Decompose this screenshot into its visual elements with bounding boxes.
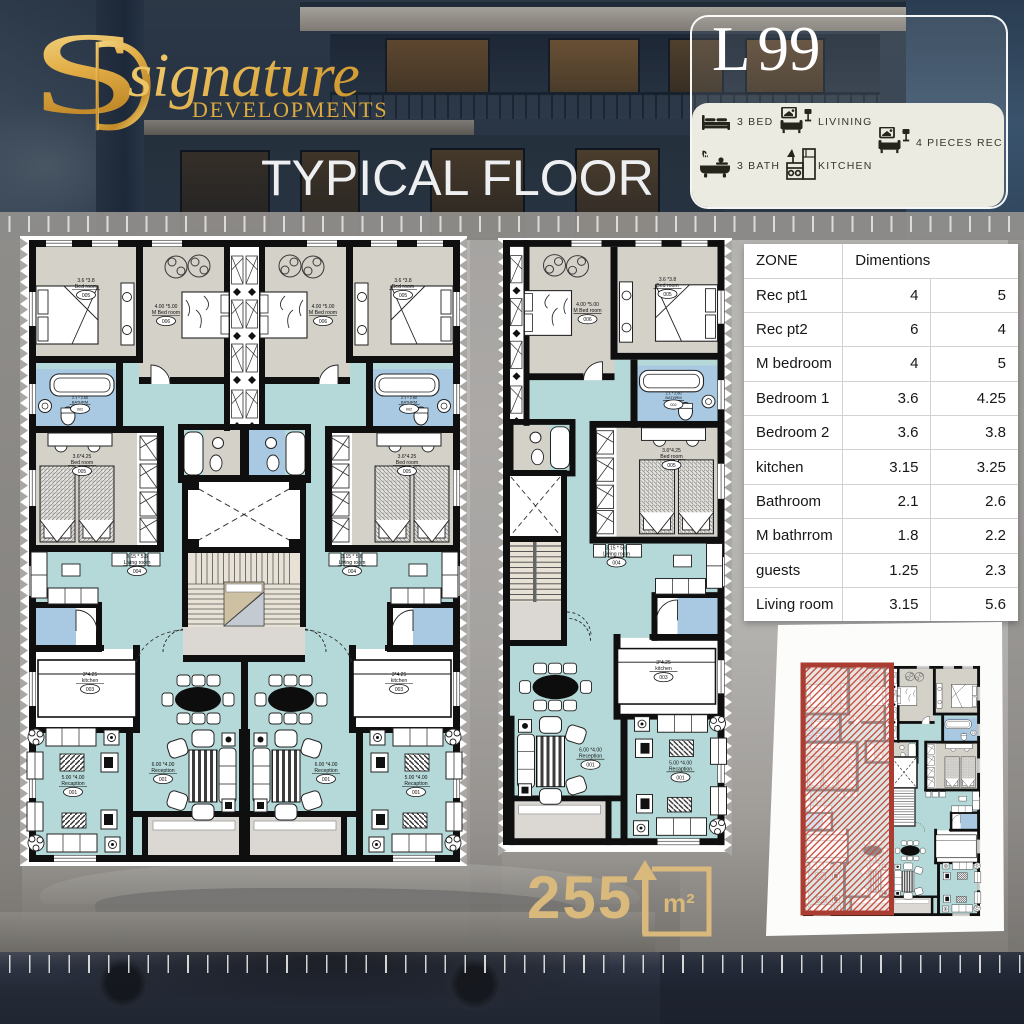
- svg-text:004: 004: [612, 560, 621, 566]
- svg-text:001: 001: [412, 790, 421, 796]
- svg-text:004: 004: [348, 569, 357, 575]
- svg-text:001: 001: [159, 777, 168, 783]
- svg-text:kitchen: kitchen: [391, 678, 408, 684]
- svg-text:kitchen: kitchen: [82, 678, 99, 684]
- svg-text:Bed room: Bed room: [660, 454, 683, 460]
- svg-text:005: 005: [667, 463, 676, 469]
- svg-text:M Bed room: M Bed room: [573, 308, 601, 314]
- svg-text:002: 002: [77, 407, 83, 411]
- svg-text:006: 006: [162, 319, 171, 325]
- svg-text:Living room: Living room: [603, 551, 630, 557]
- svg-text:003: 003: [86, 687, 95, 693]
- svg-text:Recaption: Recaption: [669, 766, 692, 772]
- svg-text:kitchen: kitchen: [655, 666, 672, 672]
- svg-text:001: 001: [676, 775, 685, 781]
- svg-text:004: 004: [133, 569, 142, 575]
- svg-text:Living room: Living room: [339, 560, 366, 566]
- svg-text:Reception: Reception: [314, 768, 337, 774]
- svg-text:Bed room: Bed room: [392, 284, 415, 290]
- svg-text:Reception: Reception: [579, 754, 602, 760]
- svg-text:001: 001: [586, 763, 595, 769]
- svg-text:003: 003: [659, 675, 668, 681]
- svg-text:002: 002: [406, 407, 412, 411]
- svg-text:Reception: Reception: [151, 768, 174, 774]
- svg-text:006: 006: [319, 319, 328, 325]
- svg-text:Bed room: Bed room: [656, 283, 679, 289]
- svg-text:002: 002: [670, 403, 676, 407]
- svg-text:005: 005: [78, 469, 87, 475]
- svg-text:Recaption: Recaption: [61, 781, 84, 787]
- svg-text:003: 003: [395, 687, 404, 693]
- svg-text:Bed room: Bed room: [396, 460, 419, 466]
- svg-text:001: 001: [322, 777, 331, 783]
- svg-text:005: 005: [399, 293, 408, 299]
- svg-text:005: 005: [403, 469, 412, 475]
- svg-text:005: 005: [663, 292, 672, 298]
- svg-text:001: 001: [69, 790, 78, 796]
- svg-text:Bed room: Bed room: [75, 284, 98, 290]
- svg-text:M Bed room: M Bed room: [309, 310, 337, 316]
- svg-text:Bed room: Bed room: [71, 460, 94, 466]
- svg-text:Recaption: Recaption: [404, 781, 427, 787]
- svg-text:M Bed room: M Bed room: [152, 310, 180, 316]
- svg-text:006: 006: [583, 317, 592, 323]
- svg-text:005: 005: [82, 293, 91, 299]
- svg-text:Living room: Living room: [124, 560, 151, 566]
